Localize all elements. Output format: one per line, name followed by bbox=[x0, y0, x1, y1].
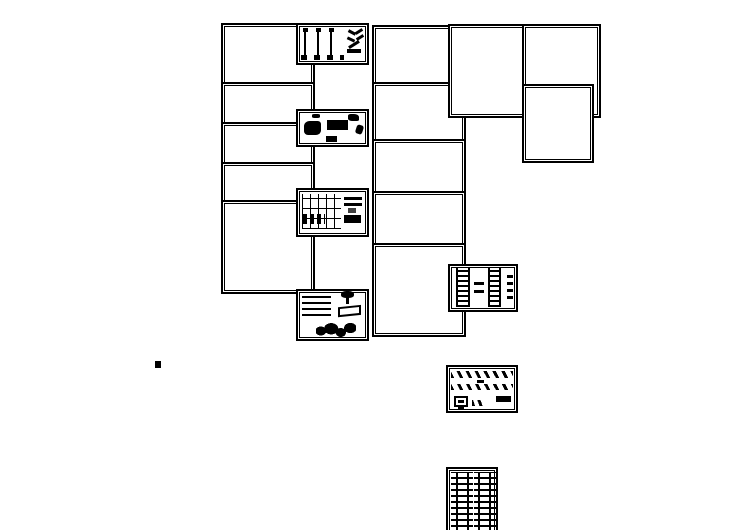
pile-detail-sheet bbox=[296, 23, 369, 65]
sheet-texture bbox=[302, 296, 331, 316]
sheet-texture bbox=[326, 136, 337, 142]
isometric-detail-sheet bbox=[296, 289, 369, 341]
sheet-texture bbox=[347, 49, 361, 53]
sheet-texture bbox=[462, 472, 473, 530]
wall-elevation-sheet bbox=[448, 264, 518, 312]
beam-section-sheet bbox=[446, 365, 518, 413]
sheet-texture bbox=[477, 380, 484, 383]
column-elevation-sheet-1 bbox=[446, 467, 498, 530]
sheet-texture bbox=[507, 275, 513, 299]
sheet-texture bbox=[451, 472, 462, 530]
sheet-texture bbox=[338, 305, 361, 317]
sheet-texture bbox=[316, 322, 356, 336]
foundation-grid-plan-sheet bbox=[296, 188, 369, 237]
sheet-texture bbox=[496, 396, 511, 402]
sheet-texture bbox=[348, 114, 359, 121]
sheet-texture bbox=[355, 124, 364, 135]
sheet-texture bbox=[474, 472, 485, 530]
sheet-texture bbox=[488, 268, 502, 307]
sheet-texture bbox=[451, 371, 512, 378]
sheet-texture bbox=[344, 195, 363, 206]
sheet-texture bbox=[344, 215, 361, 223]
sheet-texture bbox=[302, 194, 341, 229]
cad-drawing-preview-canvas bbox=[0, 0, 749, 530]
sheet-texture bbox=[301, 55, 344, 60]
sheet-texture bbox=[485, 472, 496, 530]
general-notes-sheet bbox=[522, 84, 594, 163]
sheet-texture bbox=[454, 396, 468, 407]
sheet-texture bbox=[304, 28, 342, 56]
construction-detail-sheet bbox=[296, 109, 369, 147]
sheet-texture bbox=[451, 384, 512, 391]
sheet-texture bbox=[474, 278, 484, 293]
sheet-texture bbox=[456, 268, 470, 307]
sheet-texture bbox=[348, 208, 356, 213]
partial-plans-sheet bbox=[448, 24, 527, 118]
sheet-texture bbox=[472, 400, 484, 406]
sheet-texture bbox=[312, 114, 320, 118]
sheet-texture bbox=[327, 120, 348, 130]
sheet-texture bbox=[348, 29, 356, 35]
stray-mark bbox=[155, 361, 161, 368]
sheet-texture bbox=[346, 293, 349, 304]
sheet-texture bbox=[304, 121, 321, 136]
